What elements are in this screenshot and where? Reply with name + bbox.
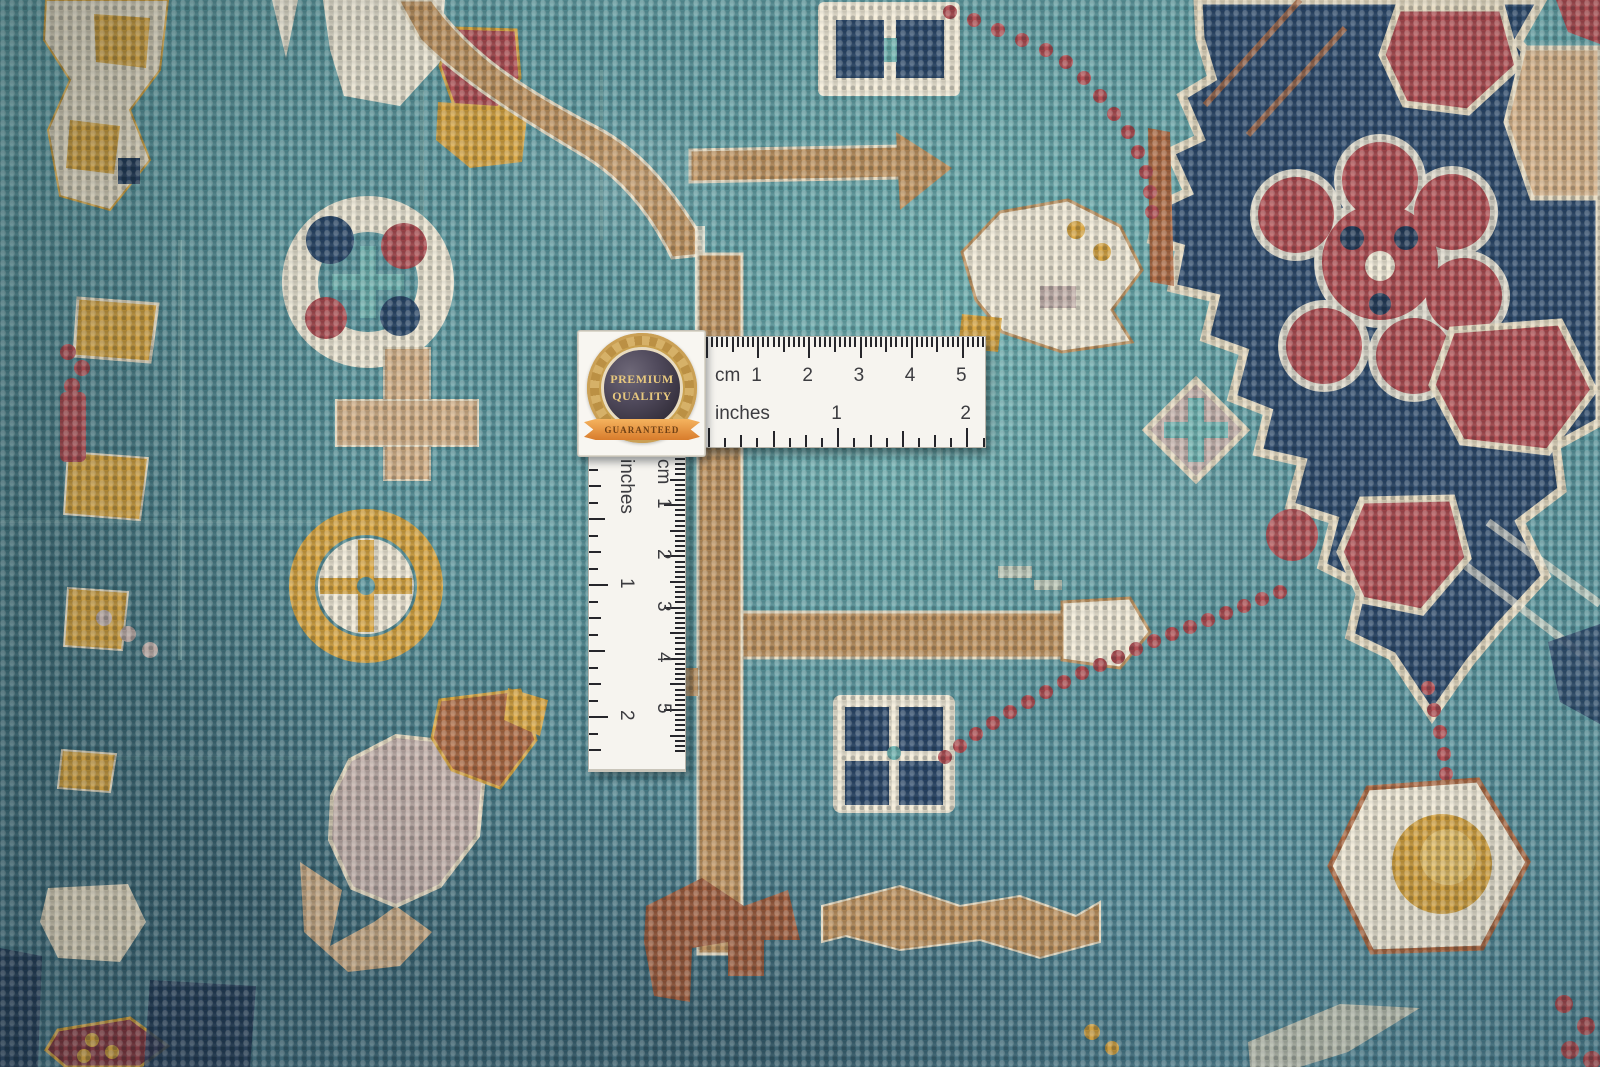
cm-tick: [675, 550, 685, 552]
inch-tick: [724, 438, 726, 447]
cm-tick: [962, 337, 964, 358]
cm-tick: [675, 724, 685, 726]
cm-tick: [747, 337, 749, 347]
cm-tick: [675, 653, 685, 655]
inch-tick: [589, 535, 598, 537]
cm-tick: [670, 683, 685, 685]
pendant-ball-motif: [1330, 681, 1528, 952]
cm-tick: [849, 337, 851, 347]
cm-tick: [675, 468, 685, 470]
gold-leaf-motif: [74, 298, 158, 362]
cm-tick: [675, 561, 685, 563]
cm-tick: [773, 337, 775, 347]
cm-number: 4: [654, 652, 673, 663]
cm-tick: [819, 337, 821, 347]
badge-medallion: PREMIUM QUALITY: [601, 347, 683, 429]
cm-tick: [675, 514, 685, 516]
inch-tick: [589, 667, 598, 669]
cm-tick: [839, 337, 841, 347]
badge-premium-text: PREMIUM: [610, 372, 674, 387]
horizontal-inches-label: inches: [715, 404, 770, 423]
cm-tick: [865, 337, 867, 347]
cm-tick: [675, 484, 685, 486]
inch-tick: [589, 518, 605, 520]
cm-tick: [824, 337, 826, 347]
cm-tick: [675, 596, 685, 598]
cm-number: 1: [751, 366, 762, 385]
cm-number: 3: [854, 366, 865, 385]
gold-wheel-motif: [302, 522, 430, 650]
cm-tick: [675, 648, 685, 650]
cm-tick: [706, 337, 708, 358]
cm-tick: [721, 337, 723, 347]
stem-foot: [644, 878, 800, 1002]
cm-tick: [675, 694, 685, 696]
vertical-inches-label: inches: [617, 459, 636, 514]
vertical-ruler: cm 12345 inches 12: [588, 450, 686, 772]
cm-tick: [675, 617, 685, 619]
inch-tick: [773, 431, 775, 447]
cm-tick: [716, 337, 718, 347]
inch-tick: [950, 438, 952, 447]
cm-tick: [675, 525, 685, 527]
cm-tick: [906, 337, 908, 347]
cm-tick: [675, 673, 685, 675]
cm-tick: [808, 337, 810, 358]
cm-number: 5: [956, 366, 967, 385]
horizontal-cm-label: cm: [715, 366, 740, 385]
inch-number: 1: [617, 578, 636, 589]
cm-tick: [957, 337, 959, 347]
inch-tick: [589, 568, 598, 570]
cm-tick: [670, 735, 685, 737]
cm-tick: [854, 337, 856, 347]
cm-tick: [829, 337, 831, 347]
cm-tick: [675, 627, 685, 629]
cm-tick: [675, 719, 685, 721]
cm-tick: [947, 337, 949, 347]
cm-tick: [670, 530, 685, 532]
cm-tick: [901, 337, 903, 347]
cm-tick: [803, 337, 805, 347]
cm-tick: [675, 535, 685, 537]
cm-tick: [757, 337, 759, 358]
inch-tick: [934, 435, 936, 447]
inch-tick: [853, 438, 855, 447]
rosette-motif: [282, 196, 454, 368]
inch-tick: [589, 485, 601, 487]
cm-tick: [675, 714, 685, 716]
inch-tick: [902, 431, 904, 447]
inch-tick: [821, 438, 823, 447]
cm-tick: [675, 520, 685, 522]
cm-tick: [675, 745, 685, 747]
cm-number: 2: [654, 549, 673, 560]
cm-tick: [752, 337, 754, 347]
cm-tick: [783, 337, 785, 352]
inch-number: 2: [617, 710, 636, 721]
cm-tick: [675, 637, 685, 639]
cm-tick: [675, 473, 685, 475]
inch-tick: [589, 650, 605, 652]
inch-tick: [886, 438, 888, 447]
inch-tick: [966, 428, 968, 447]
cm-tick: [972, 337, 974, 347]
cm-number: 5: [654, 703, 673, 714]
cm-tick: [793, 337, 795, 347]
inch-tick: [589, 634, 598, 636]
cm-tick: [675, 740, 685, 742]
cm-tick: [936, 337, 938, 352]
cm-tick: [675, 499, 685, 501]
cm-tick: [675, 668, 685, 670]
cm-tick: [977, 337, 979, 347]
inch-number: 1: [831, 404, 842, 423]
cm-tick: [675, 729, 685, 731]
cm-tick: [675, 576, 685, 578]
inch-tick: [789, 438, 791, 447]
cm-tick: [860, 337, 862, 358]
cm-number: 3: [654, 601, 673, 612]
cm-tick: [711, 337, 713, 347]
inch-number: 2: [960, 404, 971, 423]
cm-tick: [916, 337, 918, 347]
left-motifs: [0, 0, 478, 1067]
cm-tick: [762, 337, 764, 347]
vertical-cm-label: cm: [654, 459, 673, 484]
inch-tick: [918, 438, 920, 447]
cm-tick: [880, 337, 882, 347]
cm-tick: [675, 571, 685, 573]
cm-tick: [675, 612, 685, 614]
inch-tick: [589, 551, 601, 553]
cm-tick: [926, 337, 928, 347]
rug-photo-scene: cm 12345 inches 12 cm 12345 inches 12 PR…: [0, 0, 1600, 1067]
navy-squares-motif: [818, 2, 960, 96]
cm-tick: [675, 699, 685, 701]
inch-tick: [805, 435, 807, 447]
cm-tick: [675, 494, 685, 496]
inch-tick: [837, 428, 839, 447]
cm-tick: [931, 337, 933, 347]
cm-tick: [670, 581, 685, 583]
cm-tick: [982, 337, 984, 347]
cm-tick: [870, 337, 872, 347]
inch-tick: [708, 428, 710, 447]
inch-tick: [589, 716, 608, 718]
cm-tick: [885, 337, 887, 352]
premium-quality-badge: PREMIUM QUALITY GUARANTEED: [577, 330, 706, 457]
inch-tick: [589, 700, 598, 702]
cm-tick: [844, 337, 846, 347]
cm-tick: [942, 337, 944, 347]
cm-tick: [675, 663, 685, 665]
cm-tick: [675, 458, 685, 460]
cm-tick: [675, 545, 685, 547]
cm-tick: [675, 601, 685, 603]
cm-tick: [670, 632, 685, 634]
cm-tick: [675, 678, 685, 680]
inch-tick: [740, 435, 742, 447]
cm-tick: [967, 337, 969, 347]
cm-tick: [875, 337, 877, 347]
cm-tick: [675, 750, 685, 752]
cm-tick: [767, 337, 769, 347]
cm-tick: [675, 704, 685, 706]
cm-tick: [742, 337, 744, 347]
cm-tick: [788, 337, 790, 347]
inch-tick: [589, 601, 598, 603]
cm-tick: [675, 509, 685, 511]
camel-cross-motif: [336, 348, 478, 480]
inch-tick: [589, 584, 608, 586]
checkered-square-motif: [833, 695, 955, 813]
cm-tick: [778, 337, 780, 347]
inch-tick: [589, 749, 601, 751]
cm-tick: [675, 463, 685, 465]
cm-number: 2: [802, 366, 813, 385]
cm-tick: [675, 566, 685, 568]
cm-tick: [675, 642, 685, 644]
cm-tick: [675, 622, 685, 624]
hand-flower-motif: [300, 688, 548, 972]
red-vine-top: [943, 5, 1159, 219]
cm-tick: [726, 337, 728, 347]
cm-tick: [890, 337, 892, 347]
inch-tick: [589, 733, 598, 735]
inch-tick: [870, 435, 872, 447]
badge-guaranteed-text: GUARANTEED: [604, 425, 679, 435]
cm-tick: [675, 540, 685, 542]
cm-number: 1: [654, 498, 673, 509]
inch-tick: [589, 502, 598, 504]
cream-palmette: [958, 200, 1142, 352]
cm-tick: [737, 337, 739, 347]
inch-tick: [589, 617, 601, 619]
badge-ribbon: GUARANTEED: [584, 419, 700, 440]
badge-quality-text: QUALITY: [612, 389, 672, 404]
cm-tick: [675, 586, 685, 588]
inch-tick: [589, 469, 598, 471]
cm-tick: [732, 337, 734, 352]
inch-tick: [589, 683, 601, 685]
cm-tick: [675, 591, 685, 593]
bottom-right-motifs: [1084, 995, 1600, 1067]
inch-tick: [983, 438, 985, 447]
cm-tick: [814, 337, 816, 347]
cm-tick: [834, 337, 836, 352]
medallion-motif: [943, 0, 1600, 952]
cm-tick: [911, 337, 913, 358]
rug-motifs: [0, 0, 1600, 1067]
horizontal-ruler: cm 12345 inches 12: [701, 336, 986, 448]
inch-tick: [756, 438, 758, 447]
cm-number: 4: [905, 366, 916, 385]
cm-tick: [798, 337, 800, 347]
cm-tick: [895, 337, 897, 347]
cm-tick: [952, 337, 954, 347]
cm-tick: [675, 489, 685, 491]
cm-tick: [675, 689, 685, 691]
cm-tick: [921, 337, 923, 347]
